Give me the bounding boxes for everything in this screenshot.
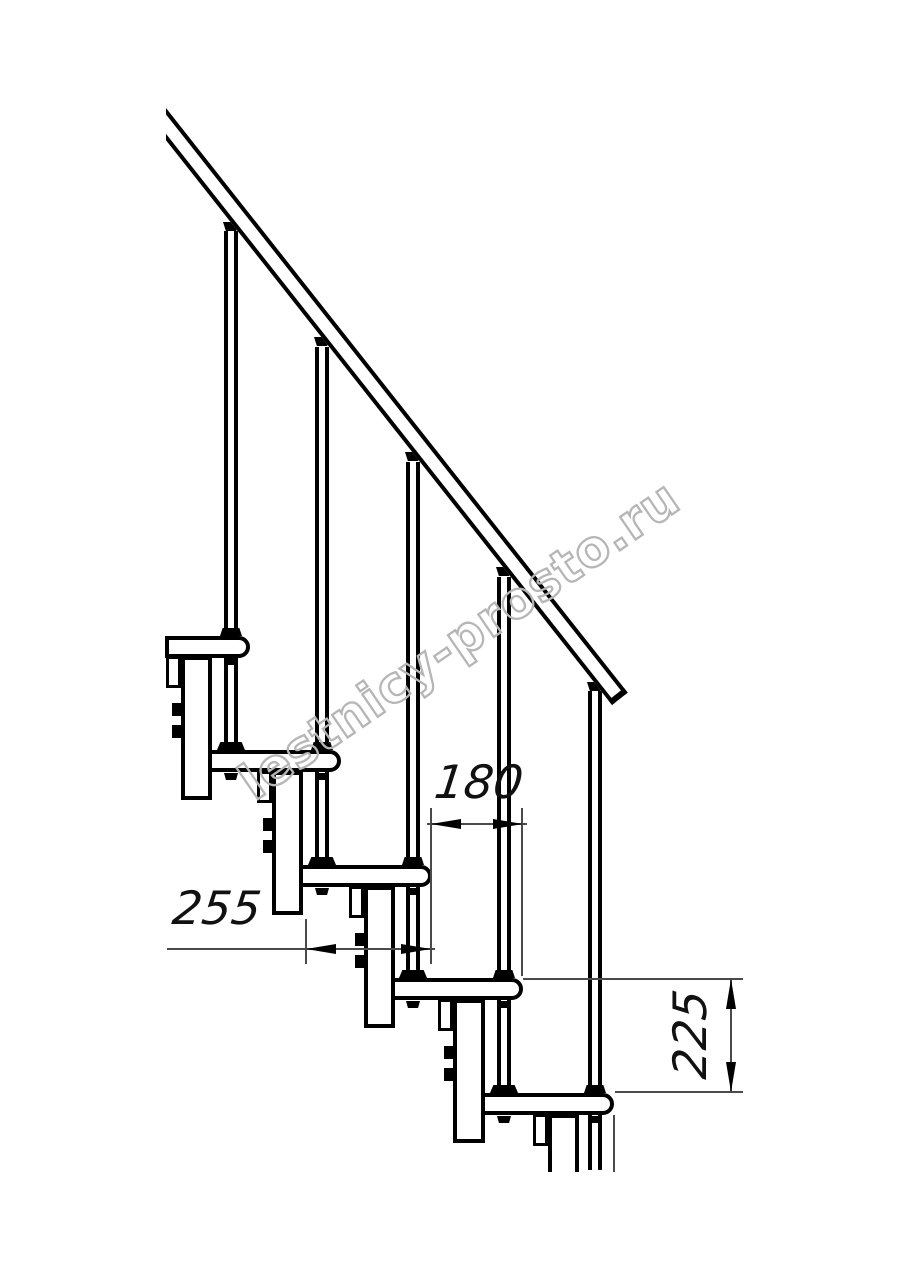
baluster-3-flange bbox=[402, 857, 424, 865]
bolt-nut bbox=[315, 888, 329, 895]
cut-line bbox=[613, 1115, 615, 1172]
ext-line-225-bottom bbox=[615, 1091, 743, 1093]
dim-label-225-text: 225 bbox=[666, 987, 714, 1081]
bolt-nut bbox=[406, 1001, 420, 1008]
dim-label-255-text: 255 bbox=[170, 884, 264, 932]
module-4-side-plate bbox=[438, 999, 453, 1031]
arrowhead bbox=[306, 944, 336, 954]
dim-label-225: 225 bbox=[666, 998, 714, 1078]
module-1-side-plate bbox=[166, 656, 181, 688]
arrowhead bbox=[431, 819, 461, 829]
module-3-clamp-tab bbox=[355, 955, 364, 968]
staircase-technical-drawing: 180 255 225 lestnicy-prosto.ru bbox=[0, 0, 914, 1280]
module-3-side-plate bbox=[349, 886, 364, 918]
dim-label-255: 255 bbox=[173, 884, 261, 932]
dim-label-180-text: 180 bbox=[432, 758, 526, 806]
ext-line-180-left bbox=[430, 808, 432, 964]
tread-1 bbox=[165, 636, 250, 658]
handrail-start-trim bbox=[144, 102, 166, 166]
module-2-clamp-tab bbox=[263, 818, 272, 831]
baluster-2-foot-flange bbox=[308, 857, 336, 865]
module-4-clamp-tab bbox=[444, 1046, 453, 1059]
module-3-clamp-tab bbox=[355, 933, 364, 946]
baluster-4-foot-flange bbox=[490, 1085, 518, 1093]
baluster-4-flange bbox=[493, 970, 515, 978]
support-module-1 bbox=[181, 656, 212, 800]
module-4-clamp-tab bbox=[444, 1068, 453, 1081]
module-2-clamp-tab bbox=[263, 840, 272, 853]
bolt-nut bbox=[224, 658, 238, 665]
ext-line-225-top bbox=[523, 978, 743, 980]
arrowhead bbox=[726, 979, 736, 1009]
support-module-4 bbox=[453, 999, 485, 1143]
arrowhead bbox=[493, 819, 523, 829]
bolt-nut bbox=[406, 888, 420, 895]
dim-line-255 bbox=[167, 948, 435, 950]
bolt-nut bbox=[497, 1116, 511, 1123]
module-1-clamp-tab bbox=[172, 725, 181, 738]
support-module-3 bbox=[364, 886, 395, 1028]
dim-label-180: 180 bbox=[435, 758, 523, 806]
bolt-nut bbox=[497, 1001, 511, 1008]
module-1-clamp-tab bbox=[172, 703, 181, 716]
baluster-1-flange bbox=[220, 628, 242, 636]
bolt-nut bbox=[588, 1116, 602, 1123]
module-5-side-plate bbox=[533, 1114, 548, 1146]
ext-line-255-left bbox=[305, 919, 307, 964]
baluster-5-flange bbox=[584, 1085, 606, 1093]
baluster-3-foot-flange bbox=[399, 970, 427, 978]
arrowhead bbox=[726, 1062, 736, 1092]
support-module-5 bbox=[548, 1114, 579, 1172]
baluster-1 bbox=[224, 231, 238, 742]
ext-line-180-right bbox=[521, 808, 523, 976]
arrowhead bbox=[401, 944, 431, 954]
